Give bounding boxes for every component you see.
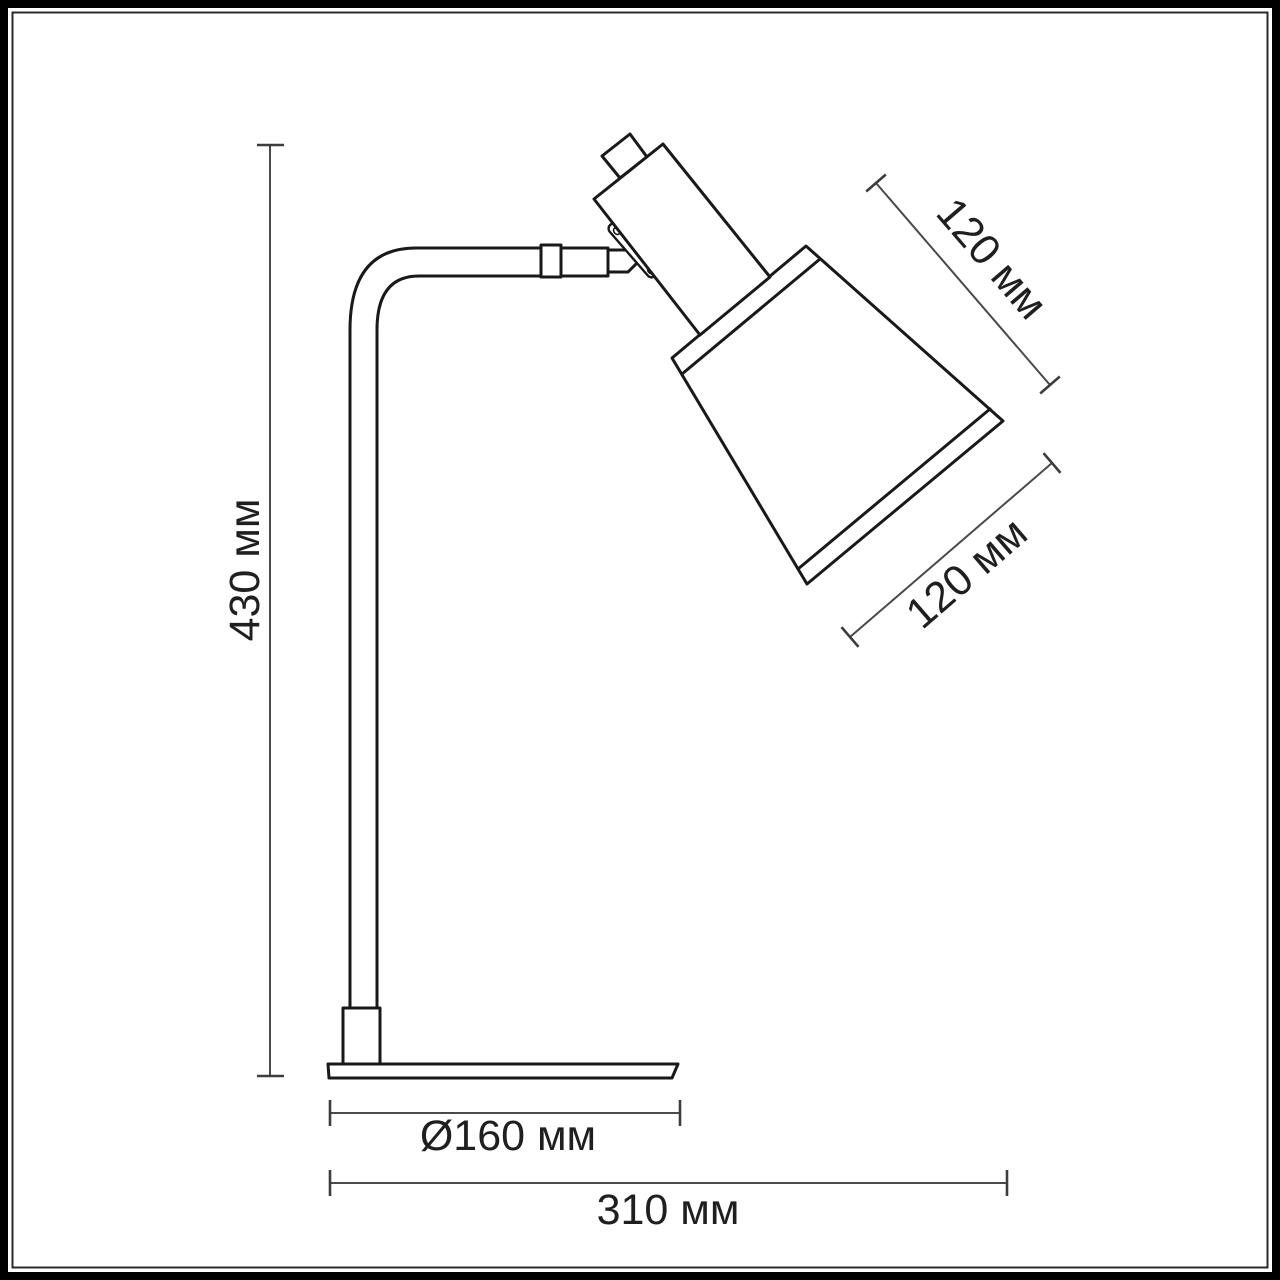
diagram-canvas: 430 мм 120 мм 120 мм Ø160 мм	[0, 0, 1280, 1280]
lamp-dimension-diagram: 430 мм 120 мм 120 мм Ø160 мм	[0, 0, 1280, 1280]
dimension-label: 310 мм	[597, 1186, 740, 1234]
arm-collar	[541, 245, 561, 277]
stem-socket	[343, 1008, 380, 1065]
dimension-label: Ø160 мм	[420, 1112, 596, 1160]
dimension-label: 430 мм	[221, 499, 269, 642]
base-plate	[328, 1064, 678, 1078]
